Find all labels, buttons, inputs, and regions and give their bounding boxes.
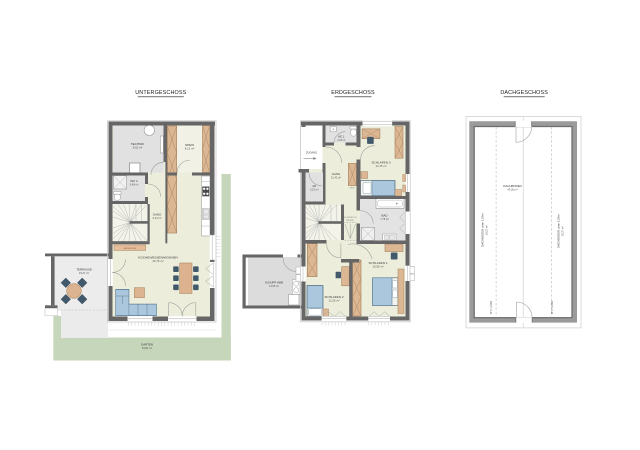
svg-text:GANG: GANG xyxy=(153,213,162,217)
svg-text:GANG: GANG xyxy=(332,172,341,176)
svg-text:DACHBODEN unter 1,80m: DACHBODEN unter 1,80m xyxy=(557,214,561,248)
svg-text:16,27 m²: 16,27 m² xyxy=(562,226,565,236)
svg-text:9,52 m²: 9,52 m² xyxy=(133,146,143,150)
svg-text:BAD: BAD xyxy=(382,214,388,218)
svg-text:3,48 m²: 3,48 m² xyxy=(130,183,139,187)
svg-text:GARDEROBE: GARDEROBE xyxy=(123,247,136,250)
svg-text:ERDGESCHOSS: ERDGESCHOSS xyxy=(331,90,375,96)
svg-text:RH = 1,00m: RH = 1,00m xyxy=(490,301,493,314)
svg-text:12,26 m²: 12,26 m² xyxy=(328,299,339,303)
svg-text:12,15 m²: 12,15 m² xyxy=(375,164,386,168)
svg-text:TERRASSE: TERRASSE xyxy=(76,268,92,272)
svg-text:WC 2: WC 2 xyxy=(130,179,138,183)
svg-text:15,56 m²: 15,56 m² xyxy=(372,265,383,269)
svg-text:AR: AR xyxy=(312,184,316,188)
svg-text:SCHUPP HWB: SCHUPP HWB xyxy=(265,281,283,285)
svg-text:16,27 m²: 16,27 m² xyxy=(486,225,489,235)
svg-text:23,27 m²: 23,27 m² xyxy=(79,271,89,275)
svg-text:UNTERGESCHOSS: UNTERGESCHOSS xyxy=(135,90,186,96)
svg-text:ZUGANG: ZUGANG xyxy=(306,151,317,155)
svg-text:RH = 1,00m: RH = 1,00m xyxy=(551,301,554,314)
svg-text:TREPPE: TREPPE xyxy=(346,220,355,222)
svg-text:2,92 m²: 2,92 m² xyxy=(337,139,345,142)
svg-text:43,28 m²: 43,28 m² xyxy=(507,188,517,192)
svg-text:5,13 m²: 5,13 m² xyxy=(153,216,162,220)
svg-text:42,76 m²: 42,76 m² xyxy=(152,259,163,263)
svg-text:GARTEN: GARTEN xyxy=(141,343,153,347)
svg-text:94,84 m²: 94,84 m² xyxy=(142,346,152,350)
svg-text:DACHBODEN unter 1,80m: DACHBODEN unter 1,80m xyxy=(481,213,485,247)
svg-text:WC 1: WC 1 xyxy=(338,136,345,139)
svg-text:DACHGESCHOSS: DACHGESCHOSS xyxy=(500,90,548,96)
svg-text:2,10 m²: 2,10 m² xyxy=(310,189,319,192)
svg-text:8,12 m²: 8,12 m² xyxy=(185,146,195,150)
svg-text:13,56 m²: 13,56 m² xyxy=(269,285,279,288)
svg-text:DACHBODEN: DACHBODEN xyxy=(503,184,521,188)
svg-text:11,42 m²: 11,42 m² xyxy=(331,176,341,180)
svg-text:GARD.: GARD. xyxy=(350,187,356,190)
svg-text:7,78 m²: 7,78 m² xyxy=(380,217,389,221)
